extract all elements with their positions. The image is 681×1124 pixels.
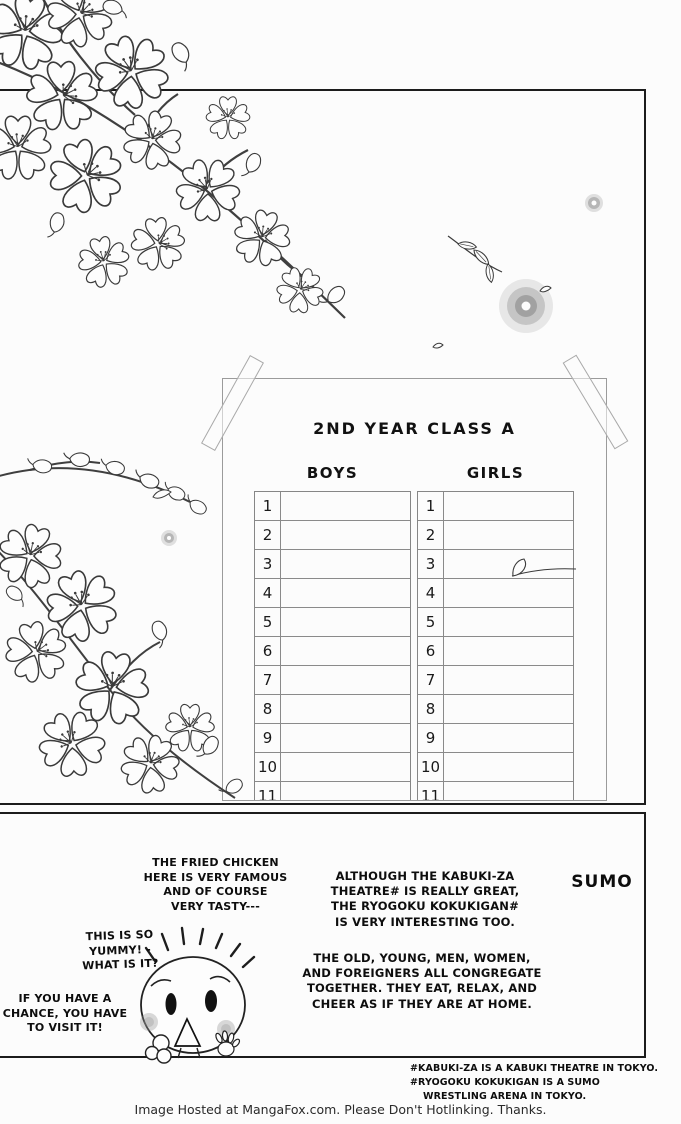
balloon-visit: IF YOU HAVE A CHANCE, YOU HAVE TO VISIT … bbox=[2, 992, 128, 1036]
roster-number: 10 bbox=[418, 753, 444, 781]
roster-sign: 2ND YEAR CLASS A BOYS GIRLS 1 2 3 4 5 6 … bbox=[222, 378, 607, 801]
roster-row: 8 bbox=[418, 695, 573, 724]
roster-name-blank bbox=[281, 637, 410, 665]
roster-number: 2 bbox=[418, 521, 444, 549]
roster-row: 9 bbox=[255, 724, 410, 753]
roster-row: 2 bbox=[418, 521, 573, 550]
roster-name-blank bbox=[444, 724, 573, 752]
narration-kabuki: ALTHOUGH THE KABUKI-ZA THEATRE# IS REALL… bbox=[302, 869, 548, 930]
balloon-fried-chicken: THE FRIED CHICKEN HERE IS VERY FAMOUS AN… bbox=[128, 856, 303, 914]
roster-number: 1 bbox=[255, 492, 281, 520]
roster-row: 11 bbox=[255, 782, 410, 801]
roster-name-blank bbox=[281, 608, 410, 636]
balloon-yummy: THIS IS SO YUMMY! - WHAT IS IT? bbox=[69, 927, 170, 974]
roster-number: 4 bbox=[255, 579, 281, 607]
roster-name-blank bbox=[281, 521, 410, 549]
manga-page: 2ND YEAR CLASS A BOYS GIRLS 1 2 3 4 5 6 … bbox=[0, 0, 681, 1124]
roster-name-blank bbox=[281, 695, 410, 723]
roster-row: 9 bbox=[418, 724, 573, 753]
roster-name-blank bbox=[281, 492, 410, 520]
roster-row: 10 bbox=[418, 753, 573, 782]
roster-name-blank bbox=[281, 550, 410, 578]
boys-roster-table: 1 2 3 4 5 6 7 8 9 10 11 bbox=[254, 491, 411, 801]
roster-name-blank bbox=[444, 521, 573, 549]
roster-number: 8 bbox=[255, 695, 281, 723]
roster-name-blank bbox=[281, 579, 410, 607]
translator-footnote: #KABUKI-ZA IS A KABUKI THEATRE IN TOKYO.… bbox=[410, 1062, 660, 1103]
girls-column-label: GIRLS bbox=[417, 464, 574, 482]
roster-row: 10 bbox=[255, 753, 410, 782]
roster-name-blank bbox=[444, 753, 573, 781]
roster-number: 7 bbox=[418, 666, 444, 694]
roster-row: 4 bbox=[418, 579, 573, 608]
roster-row: 5 bbox=[418, 608, 573, 637]
roster-number: 1 bbox=[418, 492, 444, 520]
roster-row: 1 bbox=[418, 492, 573, 521]
narration-crowd: THE OLD, YOUNG, MEN, WOMEN, AND FOREIGNE… bbox=[292, 951, 552, 1012]
roster-name-blank bbox=[444, 782, 573, 801]
roster-number: 11 bbox=[418, 782, 444, 801]
footnote-line: #RYOGOKU KOKUKIGAN IS A SUMO bbox=[410, 1076, 660, 1090]
sign-title: 2ND YEAR CLASS A bbox=[223, 419, 606, 438]
roster-name-blank bbox=[281, 724, 410, 752]
roster-number: 6 bbox=[418, 637, 444, 665]
roster-name-blank bbox=[444, 492, 573, 520]
roster-name-blank bbox=[444, 666, 573, 694]
roster-number: 6 bbox=[255, 637, 281, 665]
roster-number: 5 bbox=[255, 608, 281, 636]
roster-number: 4 bbox=[418, 579, 444, 607]
roster-number: 9 bbox=[418, 724, 444, 752]
footer-credit: Image Hosted at MangaFox.com. Please Don… bbox=[0, 1102, 681, 1117]
roster-row: 6 bbox=[418, 637, 573, 666]
roster-name-blank bbox=[444, 550, 573, 578]
roster-row: 8 bbox=[255, 695, 410, 724]
roster-row: 7 bbox=[255, 666, 410, 695]
roster-number: 8 bbox=[418, 695, 444, 723]
roster-number: 5 bbox=[418, 608, 444, 636]
roster-number: 2 bbox=[255, 521, 281, 549]
roster-row: 11 bbox=[418, 782, 573, 801]
roster-row: 3 bbox=[418, 550, 573, 579]
roster-name-blank bbox=[444, 695, 573, 723]
roster-number: 11 bbox=[255, 782, 281, 801]
roster-number: 3 bbox=[418, 550, 444, 578]
boys-column-label: BOYS bbox=[254, 464, 411, 482]
roster-row: 2 bbox=[255, 521, 410, 550]
roster-name-blank bbox=[444, 637, 573, 665]
roster-row: 4 bbox=[255, 579, 410, 608]
roster-name-blank bbox=[444, 608, 573, 636]
roster-row: 1 bbox=[255, 492, 410, 521]
roster-name-blank bbox=[281, 666, 410, 694]
roster-row: 5 bbox=[255, 608, 410, 637]
roster-number: 10 bbox=[255, 753, 281, 781]
footnote-line: #KABUKI-ZA IS A KABUKI THEATRE IN TOKYO. bbox=[410, 1062, 660, 1076]
roster-name-blank bbox=[444, 579, 573, 607]
roster-row: 3 bbox=[255, 550, 410, 579]
roster-row: 7 bbox=[418, 666, 573, 695]
girls-roster-table: 1 2 3 4 5 6 7 8 9 10 11 bbox=[417, 491, 574, 801]
sumo-heading: SUMO bbox=[563, 871, 641, 893]
roster-number: 3 bbox=[255, 550, 281, 578]
roster-row: 6 bbox=[255, 637, 410, 666]
roster-name-blank bbox=[281, 782, 410, 801]
roster-number: 9 bbox=[255, 724, 281, 752]
roster-name-blank bbox=[281, 753, 410, 781]
roster-number: 7 bbox=[255, 666, 281, 694]
